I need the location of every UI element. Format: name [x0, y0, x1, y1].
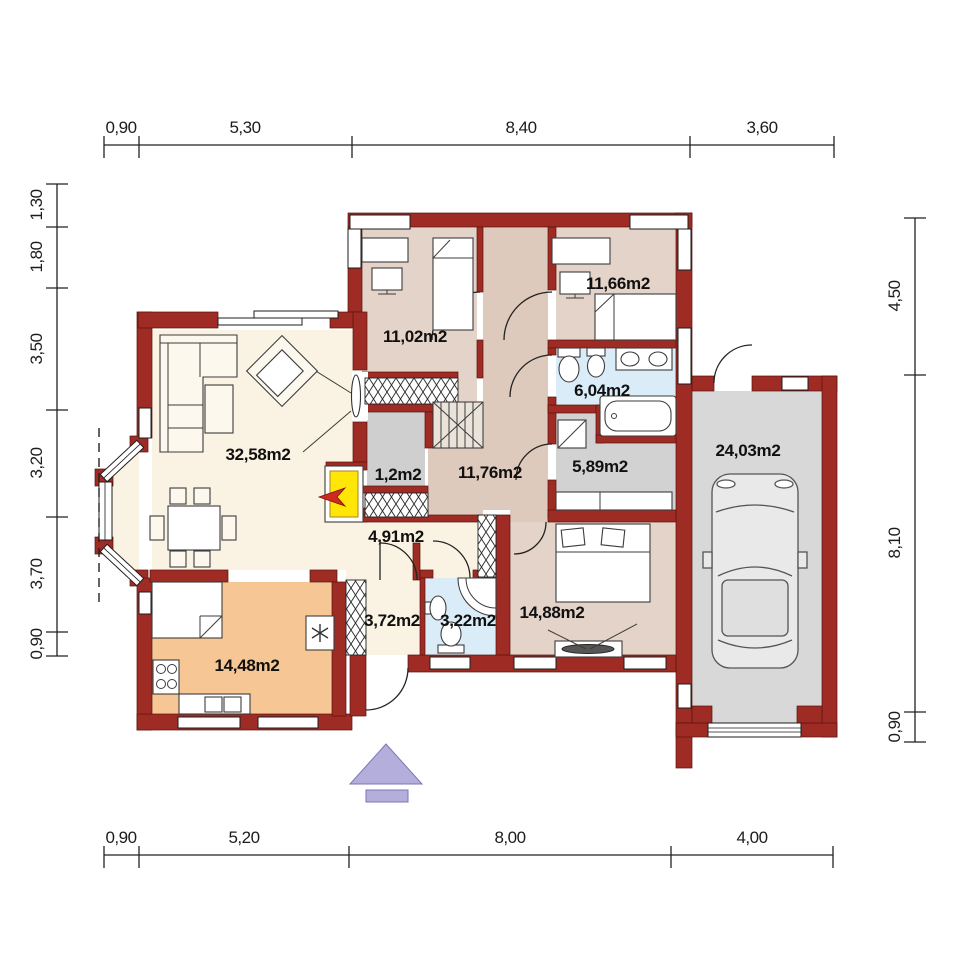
desk: [552, 238, 610, 264]
room-label-bedroom1: 11,02m2: [383, 327, 447, 346]
toilet: [558, 348, 580, 382]
dim-label: 0,90: [27, 628, 46, 659]
room-label-bedroom3: 14,88m2: [519, 603, 584, 622]
window-kitchen-west: [139, 592, 151, 614]
garage-gate: [708, 723, 801, 737]
dim-label: 1,80: [27, 241, 46, 272]
fireplace-icon: [319, 466, 363, 522]
entrance-arrow-icon: [350, 744, 422, 802]
window-bedroom2-right: [678, 229, 691, 270]
room-label-corridor: 3,72m2: [364, 611, 420, 630]
pantry: [152, 582, 222, 638]
room-label-hall: 11,76m2: [458, 463, 522, 482]
washing-machine: [558, 420, 586, 448]
bed: [595, 294, 676, 340]
room-label-closet: 1,2m2: [375, 465, 422, 484]
stove: [153, 660, 179, 694]
car-top-view-icon: [703, 474, 807, 668]
double-bed: [556, 524, 650, 602]
dim-label: 0,90: [105, 118, 136, 137]
dim-label: 3,60: [746, 118, 777, 137]
dim-label: 8,10: [885, 527, 904, 558]
window-kitchen-south-2: [258, 717, 318, 728]
window-garage-top: [782, 377, 808, 390]
dim-label: 8,40: [505, 118, 536, 137]
wardrobe-bedroom1: [365, 378, 458, 404]
utility-counter: [556, 492, 672, 510]
window-bedroom3-south-1: [514, 657, 556, 669]
double-sink: [616, 348, 672, 370]
window-bathroom2-south: [430, 657, 470, 669]
room-label-utility: 5,89m2: [572, 457, 628, 476]
floor-plan-canvas: 32,58m2 11,02m2 11,66m2 6,04m2 5,89m2 24…: [0, 0, 960, 960]
wardrobe-hall: [478, 515, 496, 577]
dim-label: 4,00: [736, 828, 767, 847]
dimension-right: 4,50 8,10 0,90: [885, 218, 926, 743]
staircase: [433, 402, 483, 448]
dim-label: 0,90: [105, 828, 136, 847]
dim-label: 8,00: [494, 828, 525, 847]
door-front: [366, 668, 408, 710]
terrace-sliding-door: [218, 311, 338, 325]
window-bedroom3-south-2: [624, 657, 666, 669]
window-bedroom1-top: [350, 215, 410, 229]
desk: [362, 238, 408, 262]
dim-label: 4,50: [885, 280, 904, 311]
floor-hall-door-zone: [510, 510, 548, 522]
door-garage-back: [714, 345, 752, 383]
floor-plan-page: 32,58m2 11,02m2 11,66m2 6,04m2 5,89m2 24…: [0, 0, 960, 960]
monitor: [372, 268, 402, 294]
bathtub: [600, 396, 676, 436]
room-label-bathroom2: 3,22m2: [440, 611, 496, 630]
dim-label: 3,50: [27, 333, 46, 364]
bidet: [587, 348, 605, 377]
dim-label: 5,30: [229, 118, 260, 137]
bed: [433, 238, 473, 330]
room-label-entry: 4,91m2: [368, 527, 424, 546]
wardrobe-corridor: [346, 580, 366, 655]
room-label-bathroom1: 6,04m2: [574, 381, 630, 400]
dim-label: 3,70: [27, 558, 46, 589]
window-living-west: [139, 408, 151, 438]
dim-label: 5,20: [228, 828, 259, 847]
room-label-bedroom2: 11,66m2: [586, 274, 650, 293]
kitchen-counter-sink: [179, 694, 250, 714]
fridge-icon: [306, 616, 334, 650]
window-garage-left: [678, 684, 691, 708]
dimension-bottom: 0,90 5,20 8,00 4,00: [104, 828, 833, 868]
window-bedroom2-top: [630, 215, 688, 229]
window-kitchen-south-1: [178, 717, 240, 728]
wardrobe-entry: [365, 493, 428, 517]
dim-label: 0,90: [885, 711, 904, 742]
dim-label: 1,30: [27, 189, 46, 220]
window-bathroom1-right: [678, 328, 691, 384]
dimension-top: 0,90 5,30 8,40 3,60: [104, 118, 834, 158]
window-bedroom1-left: [348, 229, 361, 268]
dimension-left: 1,30 1,80 3,50 3,20 3,70 0,90: [27, 184, 68, 660]
room-label-garage: 24,03m2: [715, 441, 780, 460]
room-label-kitchen: 14,48m2: [214, 656, 279, 675]
dim-label: 3,20: [27, 447, 46, 478]
room-label-living: 32,58m2: [225, 445, 290, 464]
floor-hall-lower: [428, 448, 483, 518]
